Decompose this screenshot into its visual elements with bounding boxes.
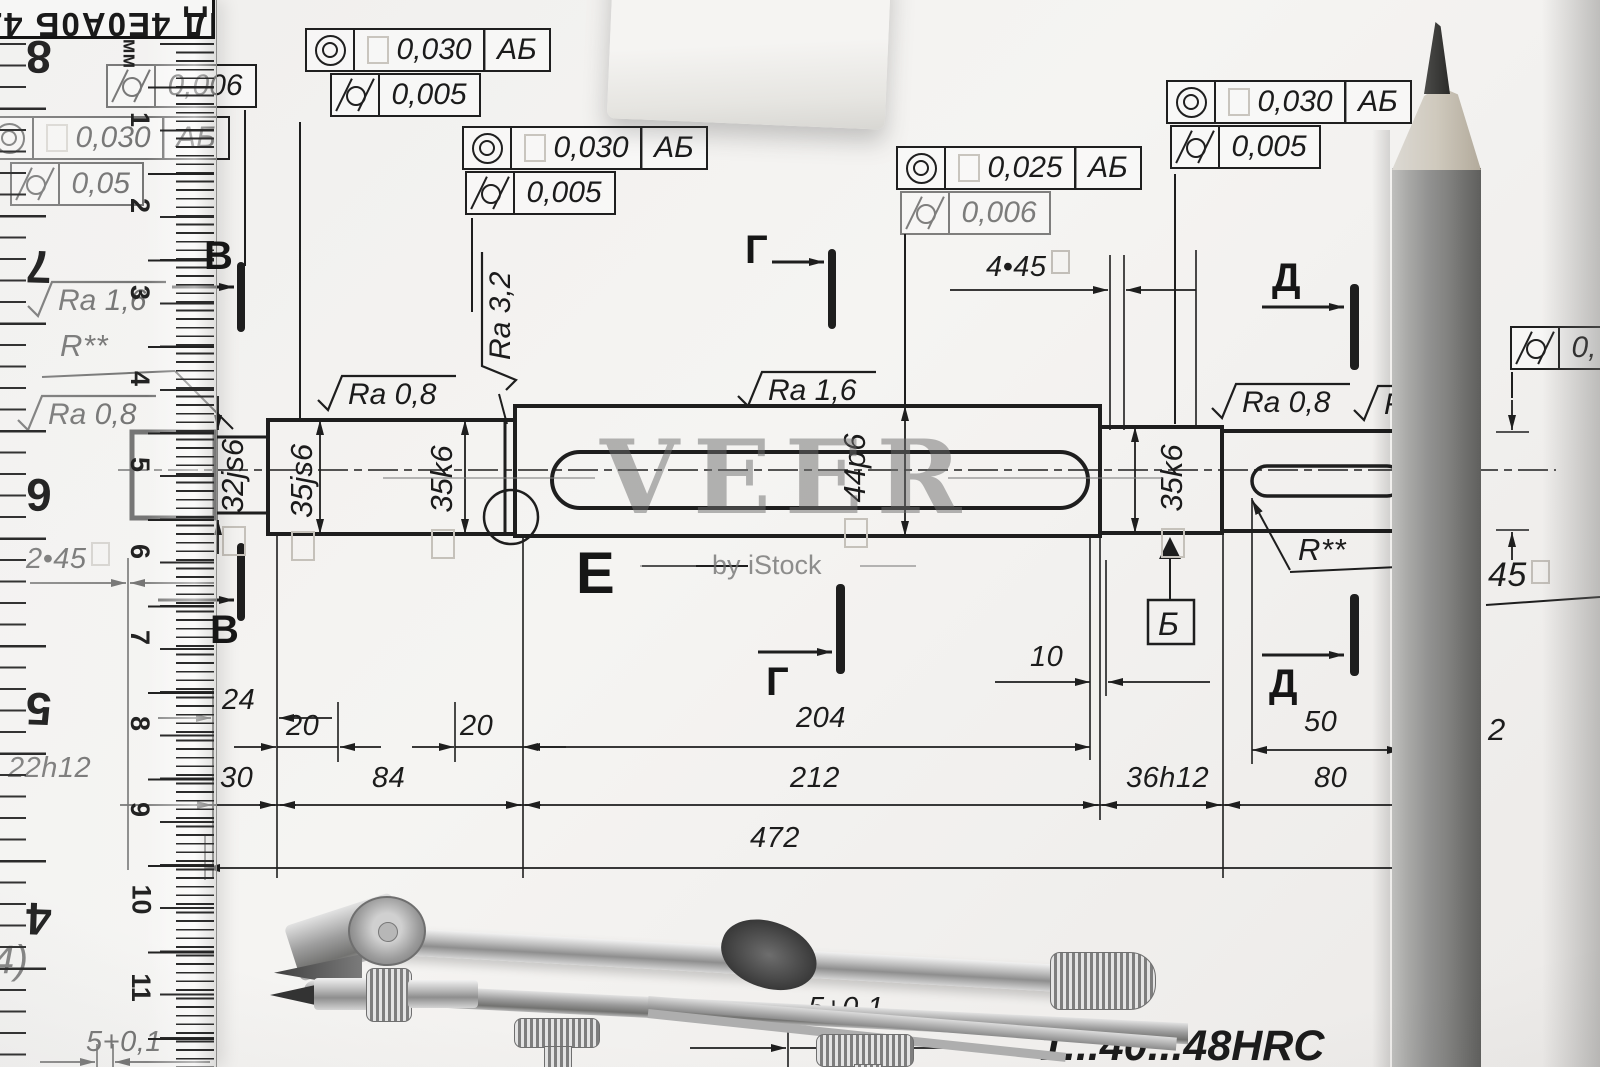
dim-20a: 20 <box>286 710 319 743</box>
ruler-number: 9 <box>124 802 155 817</box>
ruler-number: 6 <box>124 544 155 559</box>
dim-80: 80 <box>1314 762 1347 795</box>
diameter-symbol <box>1228 88 1250 116</box>
dim-212: 212 <box>790 762 840 795</box>
watermark-line-left <box>383 477 595 479</box>
ruler-left-number: 5 <box>25 682 52 737</box>
compass-screw-a <box>514 1018 600 1048</box>
tolerance-frame-center-row2: 0,006 <box>900 191 1051 235</box>
cylindricity-icon <box>900 191 950 235</box>
compass-wheel-pin <box>378 922 398 942</box>
cylindricity-icon <box>330 73 380 117</box>
radius-note: R** <box>1298 532 1346 568</box>
watermark-title: VEER <box>600 418 975 538</box>
diameter-symbol <box>291 531 315 561</box>
degree-symbol <box>1051 250 1070 274</box>
diameter-label: 35k6 <box>424 445 460 512</box>
pencil-lead-tip <box>1424 22 1450 94</box>
surface-finish-label: Ra 0,8 <box>316 372 466 416</box>
diameter-symbol <box>367 36 389 64</box>
cylindricity-icon <box>465 171 515 215</box>
tolerance-frame-top-row1: 0,030 АБ <box>305 28 551 72</box>
eraser <box>607 0 891 130</box>
surface-finish-label: Ra 0,8 <box>1210 380 1360 424</box>
ruler-cm-ticks <box>148 0 214 1067</box>
compass-knurled-end <box>1050 952 1156 1010</box>
compass-collar <box>408 980 478 1008</box>
compass-adjust-wheel <box>348 896 426 966</box>
surface-finish-label: Ra 1,6 <box>736 368 886 412</box>
diameter-symbol <box>222 526 246 556</box>
tolerance-value: 0,005 <box>1218 125 1321 169</box>
tolerance-value: 0,030 <box>554 131 629 165</box>
watermark-dash-left <box>640 565 696 567</box>
dim-10: 10 <box>1030 641 1063 674</box>
watermark-dash-right <box>860 565 916 567</box>
compass-screw-a-stem <box>544 1046 572 1067</box>
dim-50: 50 <box>1304 706 1337 739</box>
ruler-left-number: 7 <box>25 240 52 295</box>
ruler: мм 1 2 3 4 5 6 7 8 9 10 11 8 7 6 5 4 <box>0 0 217 1067</box>
tolerance-value: 0,030 <box>397 33 472 67</box>
tolerance-value: 0,006 <box>948 191 1051 235</box>
diameter-label: 32js6 <box>215 439 251 513</box>
tolerance-value: 0,005 <box>378 73 481 117</box>
ruler-number: 3 <box>124 285 155 300</box>
ruler-number: 8 <box>124 716 155 731</box>
dim-20b: 20 <box>460 710 493 743</box>
concentricity-icon <box>462 126 512 170</box>
tolerance-frame-edge: 0, <box>1510 326 1600 370</box>
chamfer-4x45: 4•45 <box>986 250 1070 284</box>
ruler-left-number: 6 <box>25 468 52 523</box>
diameter-symbol <box>431 529 455 559</box>
tolerance-frame-right-row2: 0,005 <box>1170 125 1321 169</box>
ruler-unit: мм <box>117 39 140 69</box>
compass-screw-b <box>816 1034 914 1067</box>
diameter-label: 35js6 <box>284 444 320 518</box>
dim-36h12: 36h12 <box>1126 762 1209 795</box>
datum-reference: АБ <box>483 28 551 72</box>
diameter-symbol <box>958 154 980 182</box>
tolerance-value: 0,025 <box>988 151 1063 185</box>
datum-letter-b: Б <box>1158 606 1179 643</box>
detail-letter-e: Е <box>576 540 615 607</box>
concentricity-icon <box>1166 80 1216 124</box>
section-letter-v-bottom: В <box>210 608 239 653</box>
concentricity-icon <box>305 28 355 72</box>
dim-204: 204 <box>796 702 846 735</box>
dim-84: 84 <box>372 762 405 795</box>
datum-reference: АБ <box>640 126 708 170</box>
section-letter-d-bottom: Д <box>1269 662 1298 707</box>
ruler-left-number: 4 <box>25 892 52 947</box>
tolerance-frame-top-row2: 0,005 <box>330 73 481 117</box>
dim-472: 472 <box>750 822 800 855</box>
section-letter-g-top: Г <box>745 228 768 273</box>
watermark-line-right <box>948 477 1162 479</box>
cylindricity-icon <box>1510 326 1560 370</box>
ruler-number: 7 <box>124 630 155 645</box>
tolerance-frame-center-row1: 0,025 АБ <box>896 146 1142 190</box>
diameter-symbol <box>524 134 546 162</box>
datum-reference: АБ <box>1074 146 1142 190</box>
ruler-number: 4 <box>124 371 155 386</box>
ruler-number: 11 <box>125 973 156 1002</box>
ruler-number: 1 <box>124 112 155 127</box>
ruler-number: 10 <box>126 884 157 914</box>
tolerance-value: 0,030 <box>1258 85 1333 119</box>
pencil-body <box>1392 168 1481 1067</box>
chamfer-45: 45 <box>1488 556 1550 595</box>
section-letter-v-top: В <box>204 234 233 279</box>
ruler-number: 2 <box>124 198 155 213</box>
tolerance-frame-right-row1: 0,030 АБ <box>1166 80 1412 124</box>
compass-grip-paddle <box>712 908 826 1001</box>
tolerance-value: 0, <box>1558 326 1600 370</box>
section-letter-g-bottom: Г <box>766 660 789 705</box>
edge-note: 2 <box>1488 712 1506 748</box>
dim-30: 30 <box>220 762 253 795</box>
pencil <box>1386 0 1486 1067</box>
tolerance-frame-mid-row2: 0,005 <box>465 171 616 215</box>
compass-ferrule <box>314 978 372 1010</box>
tolerance-value: 0,005 <box>513 171 616 215</box>
cylindricity-icon <box>1170 125 1220 169</box>
photo-technical-drawing: 0,006 0,030 АБ 0,05 0,030 АБ 0,005 0,030… <box>0 0 1600 1067</box>
drawing-compass <box>268 868 1188 1067</box>
pencil-shadow <box>1372 130 1390 1067</box>
diameter-symbol <box>1161 528 1185 558</box>
degree-symbol <box>1531 560 1550 584</box>
ruler-number: 5 <box>124 457 155 472</box>
dim-24: 24 <box>222 684 255 717</box>
compass-lead-tip <box>270 984 320 1006</box>
concentricity-icon <box>896 146 946 190</box>
pencil-wood-tip <box>1392 86 1481 170</box>
title-plate: ПД 4Е0А0Б 4Z <box>0 0 215 39</box>
compass-knurled-nut <box>366 968 412 1022</box>
surface-finish-label-vertical: Ra 3,2 <box>478 242 522 392</box>
watermark-subtitle: by iStock <box>712 550 822 581</box>
tolerance-frame-mid-row1: 0,030 АБ <box>462 126 708 170</box>
section-letter-d-top: Д <box>1272 256 1301 301</box>
